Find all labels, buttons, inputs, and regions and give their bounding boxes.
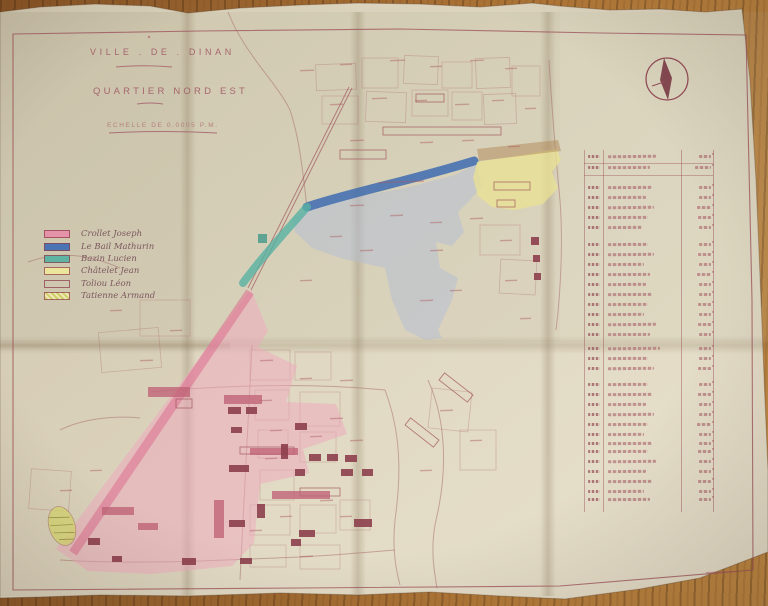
table-row-entry: [608, 293, 652, 296]
building: [250, 448, 298, 455]
legend-item-2: Bazin Lucien: [44, 253, 155, 265]
table-row-entry: [588, 460, 600, 463]
table-row-entry: [588, 423, 600, 426]
table-row-entry: [588, 403, 600, 406]
legend-owner-name: Bazin Lucien: [81, 254, 137, 264]
table-row-entry: [608, 323, 656, 326]
table-row-entry: [608, 367, 654, 370]
table-row-entry: [588, 273, 600, 276]
table-row-entry: [699, 460, 711, 463]
table-rule: [603, 150, 604, 512]
table-row-entry: [608, 393, 652, 396]
table-row-entry: [698, 393, 711, 396]
building: [228, 407, 241, 414]
table-row-entry: [588, 166, 600, 169]
table-row-entry: [608, 303, 648, 306]
legend-item-0: Crollet Joseph: [44, 228, 155, 240]
table-row-entry: [588, 383, 600, 386]
table-row-entry: [608, 155, 656, 158]
building: [148, 387, 190, 397]
table-row-entry: [588, 303, 600, 306]
building: [309, 454, 321, 461]
map-title-city: VILLE . DE . DINAN: [90, 47, 235, 57]
table-row-entry: [699, 383, 711, 386]
legend-owner-name: Châtelet Jean: [81, 266, 139, 276]
building: [533, 255, 540, 262]
horizontal-crease-left: [0, 340, 230, 351]
map-scale: ECHELLE DE 0.0005 P.M.: [107, 122, 219, 129]
building: [246, 407, 257, 414]
table-row-entry: [608, 470, 646, 473]
table-row-entry: [608, 498, 650, 501]
building: [229, 465, 249, 472]
building: [354, 519, 372, 527]
table-row-entry: [699, 433, 711, 436]
table-row-entry: [608, 263, 644, 266]
legend-item-1: Le Bail Mathurin: [44, 240, 155, 252]
table-separator: [584, 175, 713, 176]
table-row-entry: [588, 433, 600, 436]
building: [224, 395, 262, 404]
table-row-entry: [588, 216, 600, 219]
map-title-district: QUARTIER NORD EST: [93, 86, 248, 97]
table-row-entry: [699, 313, 711, 316]
table-row-entry: [608, 333, 650, 336]
table-row-entry: [588, 226, 600, 229]
table-row-entry: [699, 470, 711, 473]
legend-swatch: [44, 267, 70, 275]
building: [534, 273, 541, 280]
table-row-entry: [588, 196, 600, 199]
table-rule: [681, 150, 682, 512]
table-row-entry: [588, 442, 600, 445]
table-row-entry: [608, 166, 650, 169]
building: [341, 469, 353, 476]
legend-owner-name: Toliou Léon: [81, 279, 131, 289]
table-row-entry: [608, 460, 656, 463]
building: [231, 427, 242, 433]
building: [102, 507, 134, 515]
building: [229, 520, 245, 527]
table-row-entry: [608, 357, 648, 360]
legend-owner-name: Tatienne Armand: [81, 291, 155, 301]
table-row-entry: [608, 413, 654, 416]
table-row-entry: [608, 253, 654, 256]
table-row-entry: [588, 323, 600, 326]
table-row-entry: [608, 196, 646, 199]
photo-of-plan: VILLE . DE . DINAN QUARTIER NORD EST ECH…: [0, 0, 768, 606]
table-row-entry: [608, 450, 648, 453]
table-row-entry: [608, 433, 644, 436]
legend-item-4: Toliou Léon: [44, 278, 155, 290]
building: [295, 423, 307, 430]
table-row-entry: [699, 226, 711, 229]
table-row-entry: [608, 216, 648, 219]
building: [327, 454, 338, 461]
legend-swatch: [44, 230, 70, 238]
table-row-entry: [699, 186, 711, 189]
table-row-entry: [698, 216, 711, 219]
table-row-entry: [588, 367, 600, 370]
building: [345, 455, 357, 462]
table-row-entry: [588, 333, 600, 336]
building: [291, 539, 301, 546]
table-row-entry: [697, 423, 711, 426]
table-row-entry: [608, 206, 654, 209]
table-row-entry: [588, 293, 600, 296]
building: [182, 558, 196, 565]
table-row-entry: [699, 243, 711, 246]
table-row-entry: [699, 347, 711, 350]
table-row-entry: [699, 196, 711, 199]
building: [214, 500, 224, 538]
building: [88, 538, 100, 545]
table-row-entry: [608, 347, 660, 350]
table-row-entry: [588, 357, 600, 360]
legend: Crollet JosephLe Bail MathurinBazin Luci…: [44, 228, 155, 302]
building: [240, 558, 252, 564]
legend-swatch: [44, 243, 70, 251]
building: [112, 556, 122, 562]
table-row-entry: [699, 283, 711, 286]
building: [362, 469, 373, 476]
table-row-entry: [588, 347, 600, 350]
table-row-entry: [588, 186, 600, 189]
ink-speck: [148, 36, 150, 38]
table-row-entry: [608, 313, 644, 316]
table-row-entry: [608, 442, 652, 445]
table-row-entry: [699, 293, 711, 296]
table-row-entry: [588, 470, 600, 473]
table-row-entry: [695, 166, 711, 169]
table-row-entry: [608, 243, 648, 246]
table-rule: [584, 150, 585, 512]
building: [258, 234, 267, 243]
table-row-entry: [608, 273, 650, 276]
table-row-entry: [608, 283, 646, 286]
table-row-entry: [699, 333, 711, 336]
table-row-entry: [698, 367, 711, 370]
legend-item-3: Châtelet Jean: [44, 265, 155, 277]
vertical-crease-3: [540, 12, 556, 596]
table-row-entry: [699, 403, 711, 406]
table-row-entry: [697, 273, 711, 276]
legend-item-5: Tatienne Armand: [44, 290, 155, 302]
table-row-entry: [699, 263, 711, 266]
table-row-entry: [588, 480, 600, 483]
table-row-entry: [608, 490, 644, 493]
table-row-entry: [608, 226, 642, 229]
table-row-entry: [588, 413, 600, 416]
table-row-entry: [698, 303, 711, 306]
table-row-entry: [699, 498, 711, 501]
building: [138, 523, 158, 530]
building: [257, 504, 265, 518]
table-row-entry: [697, 206, 711, 209]
table-row-entry: [698, 480, 711, 483]
legend-owner-name: Le Bail Mathurin: [81, 242, 154, 252]
legend-swatch: [44, 292, 70, 300]
table-row-entry: [699, 357, 711, 360]
table-row-entry: [699, 490, 711, 493]
table-row-entry: [608, 186, 652, 189]
table-row-entry: [608, 383, 648, 386]
legend-swatch: [44, 280, 70, 288]
building: [272, 491, 330, 499]
building: [299, 530, 315, 537]
table-row-entry: [588, 498, 600, 501]
table-row-entry: [588, 263, 600, 266]
table-row-entry: [608, 423, 648, 426]
table-row-entry: [588, 490, 600, 493]
table-row-entry: [698, 450, 711, 453]
table-row-entry: [699, 442, 711, 445]
table-row-entry: [608, 403, 646, 406]
table-row-entry: [698, 253, 711, 256]
table-row-entry: [588, 206, 600, 209]
table-row-entry: [588, 253, 600, 256]
table-row-entry: [588, 155, 600, 158]
table-separator: [584, 163, 713, 164]
table-row-entry: [698, 323, 711, 326]
table-row-entry: [588, 283, 600, 286]
table-row-entry: [588, 243, 600, 246]
table-row-entry: [699, 413, 711, 416]
table-row-entry: [608, 480, 652, 483]
table-row-entry: [588, 313, 600, 316]
legend-owner-name: Crollet Joseph: [81, 229, 142, 239]
building: [531, 237, 539, 245]
table-row-entry: [588, 450, 600, 453]
table-row-entry: [699, 155, 711, 158]
building: [295, 469, 305, 476]
building: [281, 444, 288, 459]
table-row-entry: [588, 393, 600, 396]
legend-swatch: [44, 255, 70, 263]
